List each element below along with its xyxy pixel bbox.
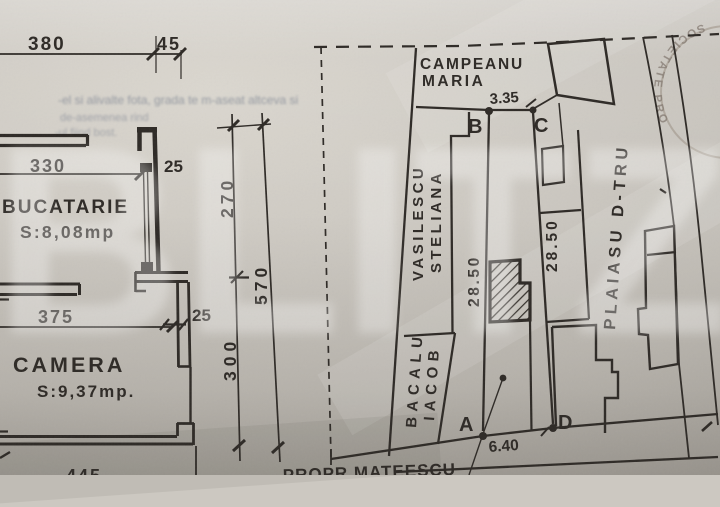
svg-text:570: 570 <box>251 264 271 305</box>
svg-text:45: 45 <box>157 34 181 54</box>
svg-text:BUCATARIE: BUCATARIE <box>2 197 129 218</box>
svg-text:STELIANA: STELIANA <box>428 170 445 273</box>
svg-text:28.50: 28.50 <box>466 255 483 307</box>
svg-text:D: D <box>558 412 572 434</box>
svg-text:-el si alivalte fota, grada te: -el si alivalte fota, grada te m-aseat a… <box>58 93 298 107</box>
svg-text:de-asemenea rind: de-asemenea rind <box>60 112 149 124</box>
svg-text:MARIA: MARIA <box>422 73 485 90</box>
svg-text:270: 270 <box>217 177 237 218</box>
svg-text:S:9,37mp.: S:9,37mp. <box>37 382 135 401</box>
svg-text:6.40: 6.40 <box>488 437 519 456</box>
svg-text:28.50: 28.50 <box>544 218 561 272</box>
svg-text:VASILESCU: VASILESCU <box>410 165 427 281</box>
svg-text:CAMPEANU: CAMPEANU <box>420 56 524 73</box>
svg-text:CAMERA: CAMERA <box>13 353 125 377</box>
svg-text:25: 25 <box>192 306 211 325</box>
svg-text:3.35: 3.35 <box>489 89 519 108</box>
svg-text:375: 375 <box>38 307 74 327</box>
svg-text:PROPR MATEESCU: PROPR MATEESCU <box>282 460 456 475</box>
svg-text:C: C <box>534 115 548 137</box>
svg-text:25: 25 <box>164 157 183 176</box>
svg-text:PLAIASU D-TRU: PLAIASU D-TRU <box>601 143 632 331</box>
svg-text:330: 330 <box>30 156 66 176</box>
svg-text:B: B <box>468 116 482 138</box>
svg-text:380: 380 <box>28 34 66 55</box>
svg-text:A: A <box>459 414 473 436</box>
svg-text:445: 445 <box>66 466 102 475</box>
svg-text:S:8,08mp: S:8,08mp <box>20 222 115 242</box>
svg-text:300: 300 <box>220 337 240 381</box>
